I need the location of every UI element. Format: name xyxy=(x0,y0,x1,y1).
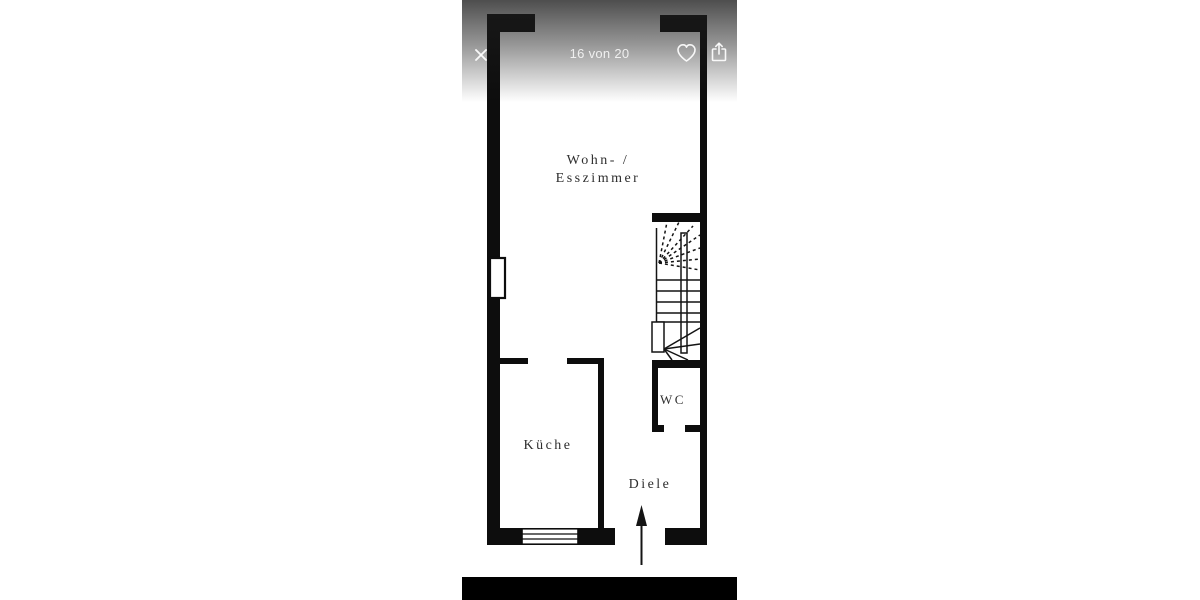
wall-wc-left xyxy=(652,368,658,432)
floorplan-drawing: Wohn- / Esszimmer Küche WC Diele xyxy=(462,0,737,577)
wall-bottom-right xyxy=(665,528,707,545)
chimney xyxy=(490,258,505,298)
room-label-wc: WC xyxy=(660,392,686,407)
room-label-hall: Diele xyxy=(629,477,672,492)
share-button[interactable] xyxy=(709,41,729,63)
image-viewer-screen: Wohn- / Esszimmer Küche WC Diele 16 von … xyxy=(0,0,1200,600)
wall-wc-bottom-left xyxy=(652,425,664,432)
viewer-toolbar: 16 von 20 xyxy=(462,0,737,70)
entrance-arrow xyxy=(636,505,647,565)
bottom-letterbox-bar xyxy=(462,577,737,600)
close-icon xyxy=(472,46,490,64)
room-label-living-line2: Esszimmer xyxy=(556,171,641,186)
staircase xyxy=(652,213,707,360)
wall-kitchen-top-left xyxy=(487,358,528,364)
heart-icon xyxy=(675,42,698,64)
share-icon xyxy=(709,41,729,63)
wall-wc-top xyxy=(652,360,707,368)
close-button[interactable] xyxy=(472,46,490,64)
kitchen-window xyxy=(522,529,578,544)
wall-stair-top xyxy=(652,213,707,222)
room-label-kitchen: Küche xyxy=(523,438,572,453)
wall-right xyxy=(700,15,707,545)
wall-wc-bottom-right xyxy=(685,425,707,432)
floorplan-photo[interactable]: Wohn- / Esszimmer Küche WC Diele 16 von … xyxy=(462,0,737,577)
room-label-living-line1: Wohn- / xyxy=(567,153,630,168)
favorite-button[interactable] xyxy=(675,42,698,64)
wall-kitchen-hall xyxy=(598,358,604,545)
